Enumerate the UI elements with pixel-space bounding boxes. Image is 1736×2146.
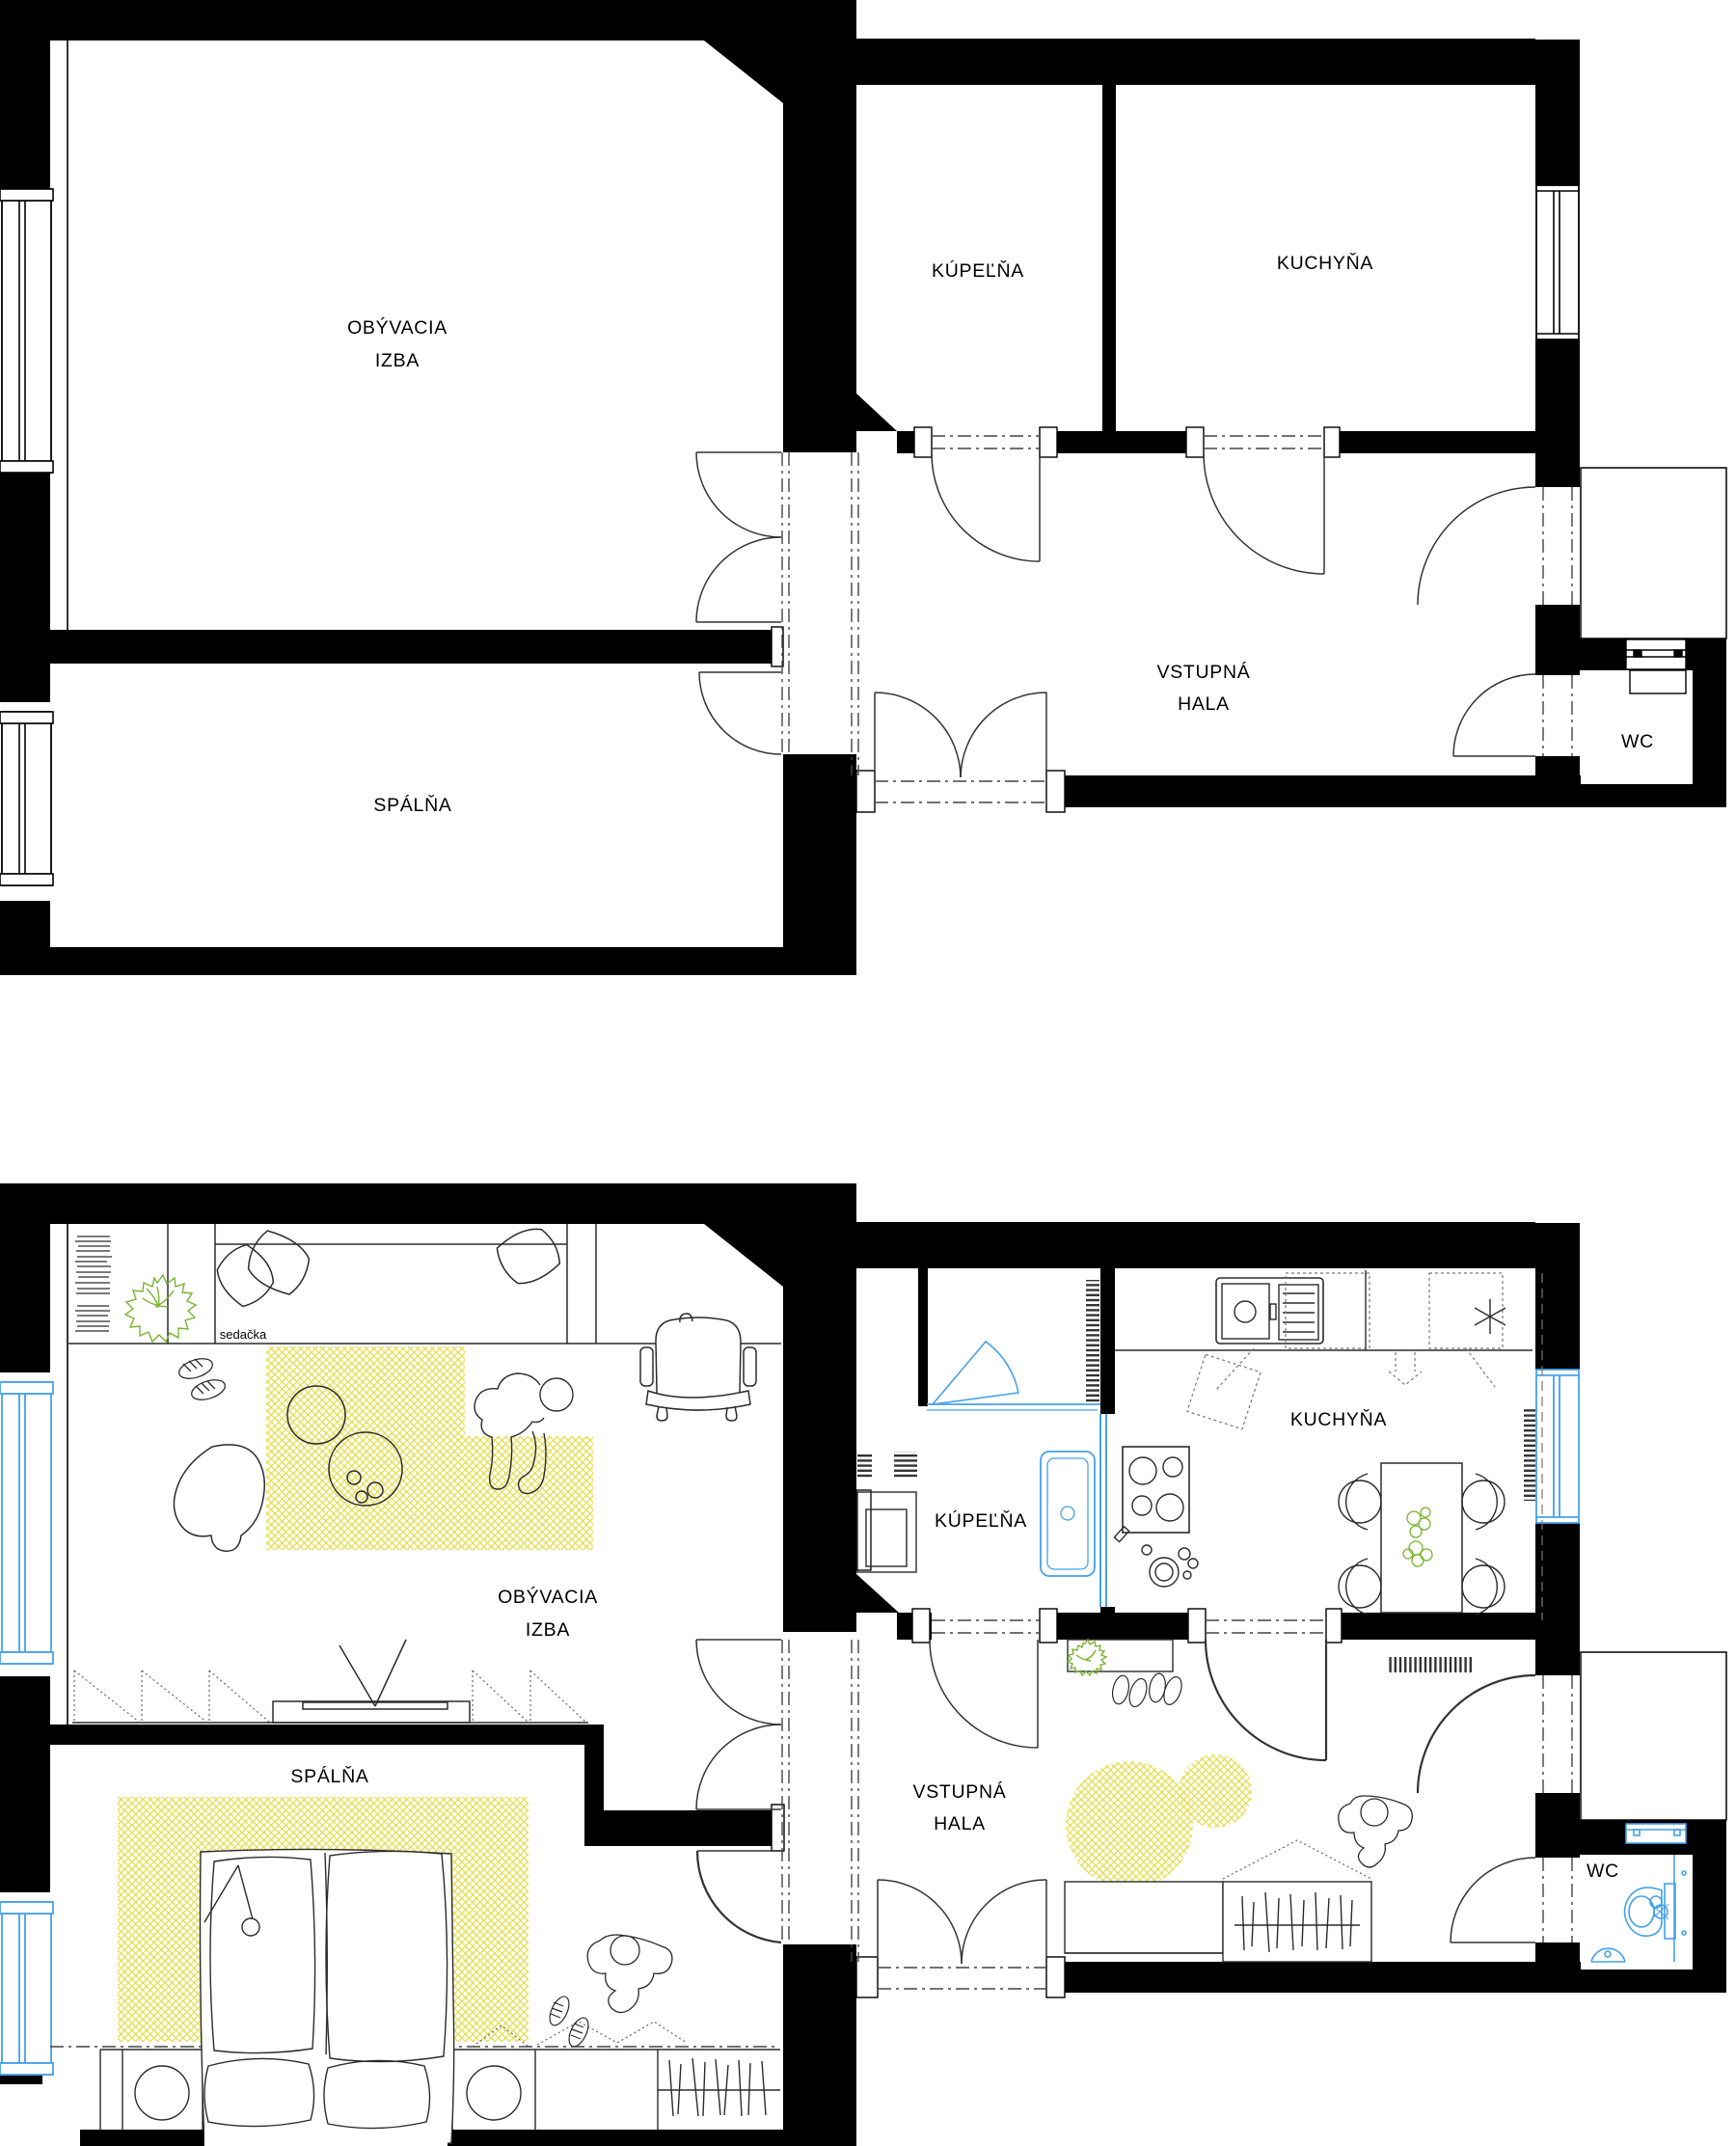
svg-text:KUCHYŇA: KUCHYŇA — [1277, 252, 1373, 274]
svg-text:SPÁLŇA: SPÁLŇA — [373, 794, 451, 816]
svg-text:VSTUPNÁ: VSTUPNÁ — [912, 1780, 1006, 1803]
svg-text:IZBA: IZBA — [526, 1619, 570, 1641]
svg-text:OBÝVACIA: OBÝVACIA — [347, 316, 448, 339]
svg-text:SPÁLŇA: SPÁLŇA — [290, 1765, 368, 1787]
svg-text:HALA: HALA — [1178, 693, 1230, 715]
svg-text:WC: WC — [1587, 1861, 1619, 1882]
svg-text:KUCHYŇA: KUCHYŇA — [1290, 1408, 1387, 1430]
svg-text:WC: WC — [1621, 731, 1654, 752]
svg-text:sedačka: sedačka — [220, 1327, 267, 1342]
svg-text:IZBA: IZBA — [375, 350, 420, 371]
svg-text:KÚPEĽŇA: KÚPEĽŇA — [932, 259, 1024, 282]
svg-text:OBÝVACIA: OBÝVACIA — [498, 1586, 598, 1608]
svg-text:VSTUPNÁ: VSTUPNÁ — [1156, 661, 1250, 683]
svg-text:KÚPEĽŇA: KÚPEĽŇA — [935, 1509, 1027, 1532]
svg-text:HALA: HALA — [934, 1813, 986, 1834]
